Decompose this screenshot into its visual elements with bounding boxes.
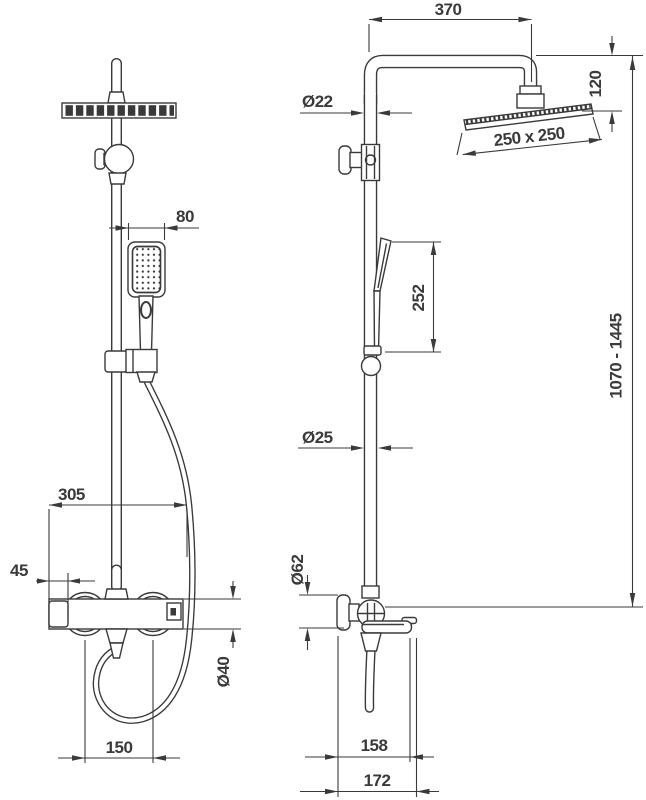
dim-escutcheon: Ø62: [288, 555, 344, 650]
diverter-knob-front: [95, 145, 134, 185]
dim-label-o22: Ø22: [302, 92, 333, 111]
dim-label-370: 370: [435, 0, 462, 19]
shower-arm: [371, 62, 531, 105]
dim-hand-shower-travel: 252: [385, 242, 441, 352]
dim-arm-reach: 370: [369, 0, 532, 82]
dim-label-252: 252: [409, 285, 428, 312]
dim-label-o40: Ø40: [214, 657, 233, 688]
outlet-collar: [106, 629, 127, 643]
dim-hand-shower-width: 80: [109, 207, 199, 240]
arm-nut-side: [517, 86, 544, 108]
dim-label-80: 80: [176, 207, 194, 226]
dim-label-150: 150: [106, 738, 133, 757]
mixer-body: [49, 599, 183, 629]
mixer-left-cap: [49, 601, 68, 627]
dim-label-45: 45: [10, 561, 28, 580]
dim-label-head-size: 250 x 250: [493, 123, 566, 150]
dim-label-o62: Ø62: [288, 555, 307, 586]
hand-shower-front: [128, 242, 165, 352]
diverter-knob-side: [339, 145, 380, 181]
spout-side: [362, 621, 412, 633]
column-base-collar: [105, 589, 128, 599]
hand-shower-button: [141, 302, 151, 318]
mixer-valve-front: [49, 589, 183, 658]
hose-side: [369, 649, 371, 708]
shower-hose: [96, 380, 192, 721]
shower-set-drawing: 370 120 250 x 250: [0, 0, 646, 800]
hose-nut: [137, 372, 155, 382]
dim-head-drop: 120: [582, 36, 622, 132]
dim-label-172: 172: [364, 771, 391, 790]
head-connector-front: [108, 92, 125, 103]
handle-knob-side: [337, 595, 350, 630]
mixer-valve-side: [337, 586, 417, 633]
dim-label-120: 120: [586, 71, 605, 98]
outlet-cone: [110, 643, 123, 658]
outlet-cone-side: [361, 633, 381, 651]
dim-label-height-range: 1070 - 1445: [607, 313, 626, 398]
dim-label-158: 158: [361, 736, 388, 755]
overhead-shower-front: [62, 103, 176, 118]
dim-label-o25: Ø25: [302, 428, 333, 447]
dim-pipe-lower: Ø25: [298, 428, 413, 451]
dim-pipe-upper: Ø22: [300, 92, 412, 116]
dim-label-305: 305: [58, 485, 85, 504]
holder-knob-side: [362, 357, 381, 376]
technical-drawing-page: 370 120 250 x 250: [0, 0, 646, 800]
